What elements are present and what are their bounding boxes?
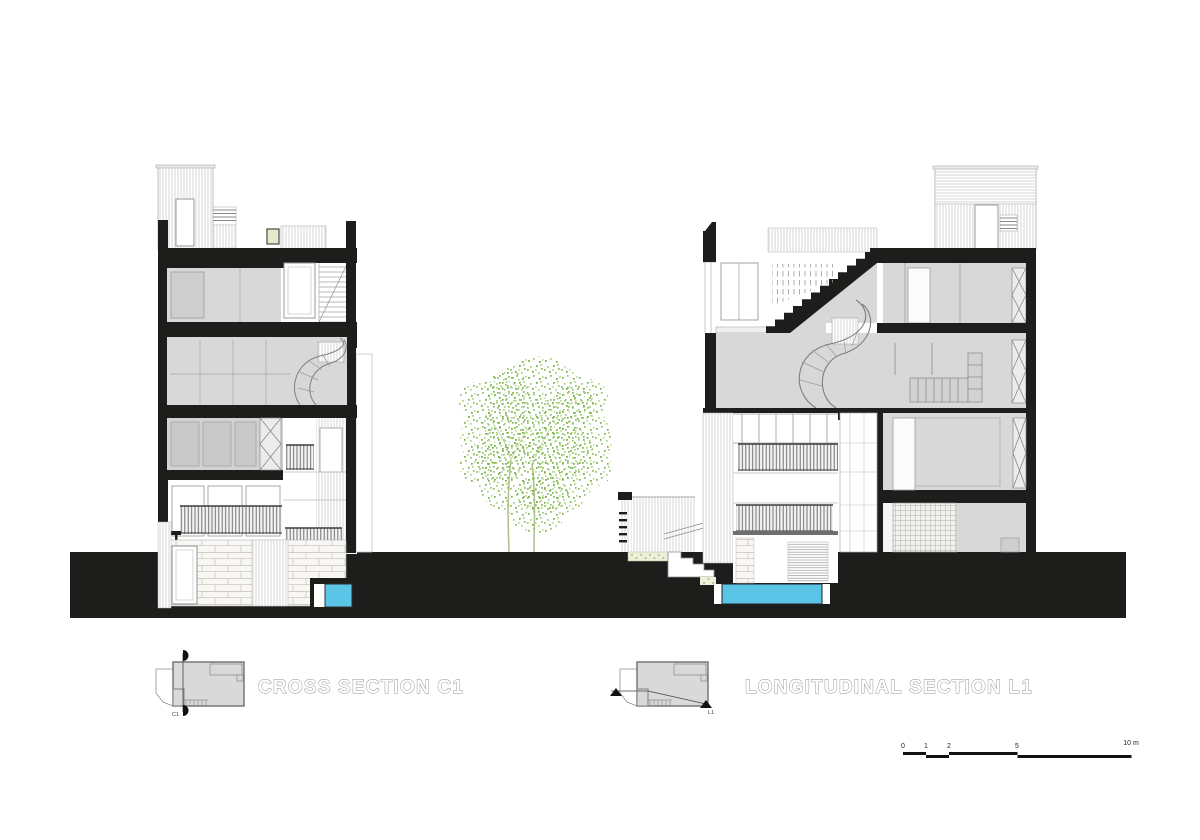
- gravel-strip-lower: [700, 577, 716, 585]
- balcony-railing-lower: [736, 505, 833, 532]
- gate-fence: [631, 497, 695, 552]
- cross-section-title: CROSS SECTION C1: [258, 677, 464, 698]
- key-plan-long: L1: [610, 662, 714, 716]
- slat-screen: [252, 540, 288, 606]
- scale-tick-0: 0: [901, 743, 905, 750]
- side-shaft: [356, 354, 372, 552]
- cross-brace-column: [260, 418, 281, 470]
- key-plan-cross: C1: [156, 650, 244, 718]
- longitudinal-section-building: [703, 164, 1038, 604]
- section-arrow-icon: [183, 650, 189, 661]
- terrace-screen: [768, 228, 877, 252]
- roof-penthouse-right: [933, 166, 1038, 250]
- scale-end-label: 10 m: [1123, 740, 1139, 747]
- stair-bulkhead-window: [721, 263, 758, 320]
- scale-bar: 0 1 2 5 10 m: [901, 740, 1139, 758]
- cross-brace-closet-low: [1013, 418, 1026, 488]
- swimming-pool-right: [714, 584, 830, 604]
- swimming-pool-left: [310, 578, 357, 612]
- gravel-strip: [628, 552, 669, 561]
- cross-brace-closet-mid: [1012, 340, 1026, 403]
- longitudinal-section-title: LONGITUDINAL SECTION L1: [745, 677, 1033, 698]
- scale-tick-2: 2: [947, 743, 951, 750]
- scale-tick-1: 1: [924, 743, 928, 750]
- cross-cut-label: C1: [172, 712, 179, 718]
- balcony-railing-upper: [738, 444, 838, 471]
- scale-tick-5: 5: [1015, 743, 1019, 750]
- penthouse-door-right: [975, 205, 998, 249]
- cross-section-building: [156, 164, 372, 612]
- roof-screen: [281, 226, 326, 250]
- clad-wall: [703, 413, 733, 563]
- courtyard-tree: [459, 356, 612, 552]
- cross-brace-closet-top: [1012, 268, 1026, 323]
- architectural-drawing-page: C1 L1 CROSS SECTION C1 LONGITUDINAL SECT…: [0, 0, 1200, 840]
- long-cut-label: L1: [708, 710, 714, 716]
- balustrade-terrace-left: [180, 506, 282, 534]
- railing-mid-left: [286, 445, 314, 470]
- skylight: [267, 229, 279, 244]
- section-drawing: C1 L1 CROSS SECTION C1 LONGITUDINAL SECT…: [0, 0, 1200, 840]
- shoji-screen-room: [893, 503, 957, 552]
- penthouse-door: [176, 199, 194, 246]
